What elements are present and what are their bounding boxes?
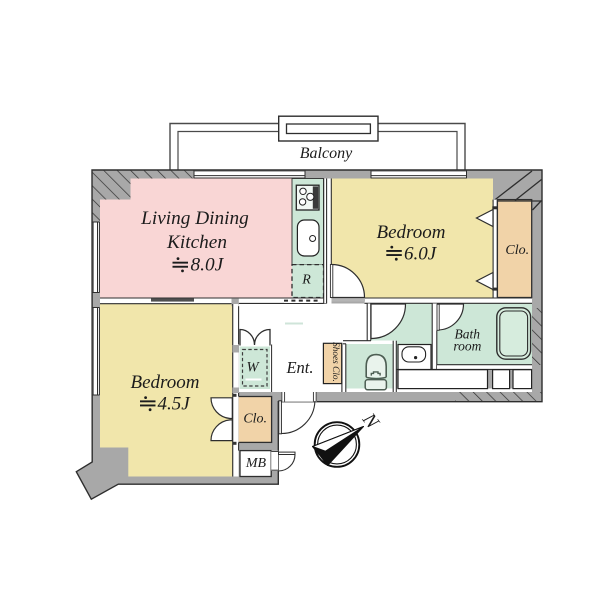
- svg-text:Clo.: Clo.: [505, 243, 529, 258]
- svg-text:Clo.: Clo.: [243, 412, 267, 427]
- svg-text:Shoes Clo.: Shoes Clo.: [330, 342, 340, 382]
- svg-text:Living Dining: Living Dining: [140, 208, 249, 229]
- svg-text:MB: MB: [245, 456, 267, 471]
- svg-text:room: room: [453, 338, 481, 353]
- svg-text:Bedroom: Bedroom: [377, 222, 446, 243]
- svg-text:4.5J: 4.5J: [158, 394, 192, 415]
- svg-text:R: R: [301, 273, 311, 288]
- svg-text:Bedroom: Bedroom: [131, 372, 200, 393]
- svg-text:Ent.: Ent.: [285, 358, 313, 377]
- svg-text:Kitchen: Kitchen: [166, 232, 227, 253]
- svg-text:8.0J: 8.0J: [191, 254, 225, 275]
- svg-text:6.0J: 6.0J: [404, 243, 438, 264]
- svg-text:Balcony: Balcony: [300, 145, 353, 162]
- svg-text:W: W: [246, 360, 260, 376]
